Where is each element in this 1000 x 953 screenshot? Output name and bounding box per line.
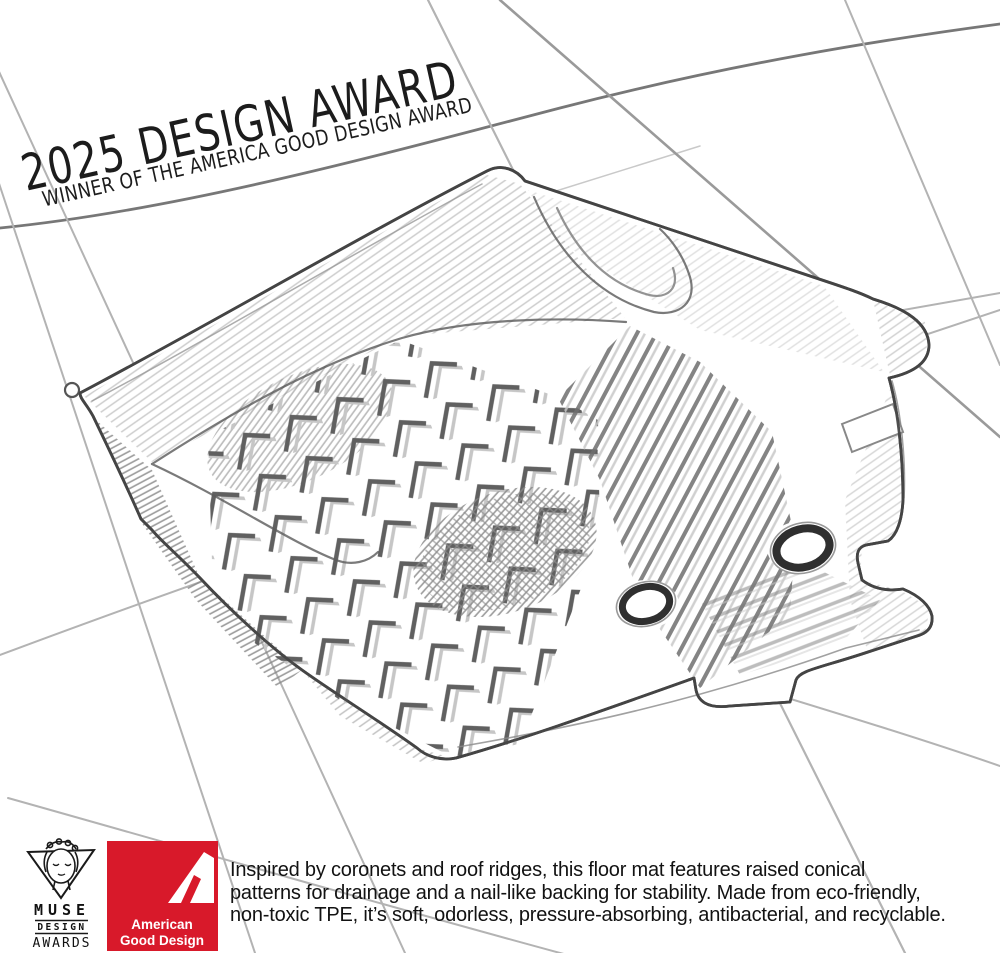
- muse-awards-word: AWARDS: [33, 936, 92, 951]
- muse-word: MUSE: [34, 901, 90, 919]
- floor-mat: [65, 168, 932, 764]
- description-line: patterns for drainage and a nail-like ba…: [230, 882, 1000, 905]
- agd-line1: American: [131, 917, 193, 932]
- muse-design-awards-logo: MUSE DESIGN AWARDS: [22, 836, 102, 952]
- award-poster: 2025 DESIGN AWARD WINNER OF THE AMERICA …: [0, 0, 1000, 953]
- muse-design-word: DESIGN: [37, 922, 86, 933]
- mat-ear-loop: [65, 383, 79, 397]
- description-line: non-toxic TPE, it’s soft, odorless, pres…: [230, 904, 1000, 927]
- american-good-design-logo: American Good Design: [107, 841, 218, 951]
- agd-line2: Good Design: [120, 933, 204, 948]
- description-line: Inspired by coronets and roof ridges, th…: [230, 859, 1000, 882]
- product-description: Inspired by coronets and roof ridges, th…: [230, 859, 1000, 927]
